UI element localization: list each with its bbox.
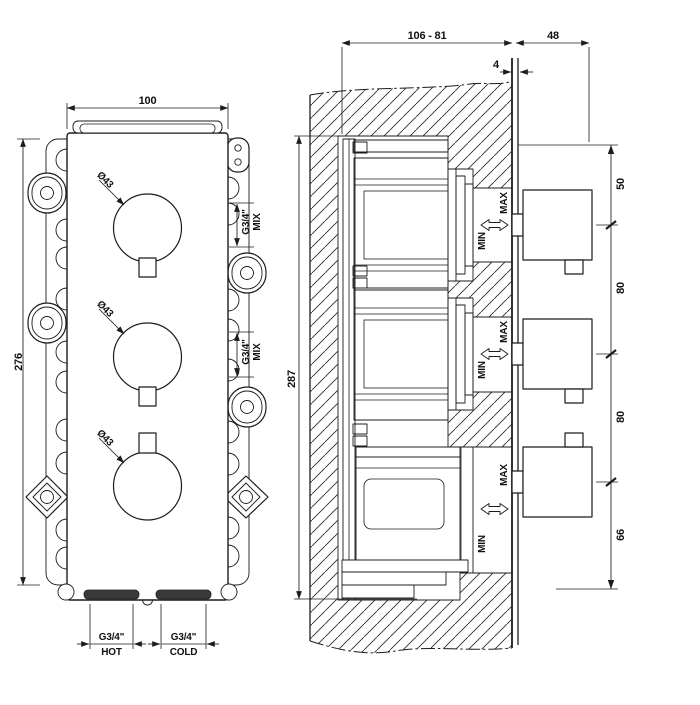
- mix-port-1-callout: G3/4" MIX: [229, 203, 263, 247]
- valve-3-min-label: MIN: [477, 535, 488, 553]
- mix-1-label: MIX: [252, 213, 263, 231]
- cold-port-callout: G3/4" COLD: [148, 604, 219, 658]
- section-height-text: 287: [286, 370, 298, 388]
- knob-2-side-tab: [565, 389, 583, 403]
- knob-1-side: [523, 190, 592, 260]
- top-lip: [73, 121, 222, 133]
- knob-2-tab: [139, 387, 156, 406]
- section-view: MAX MIN MAX MIN MAX MIN: [286, 30, 627, 653]
- valve-3-max-label: MAX: [499, 464, 510, 486]
- valve-1-stem: [512, 214, 523, 236]
- hot-label: HOT: [101, 647, 122, 658]
- valve-3-adjust-arrow: [481, 504, 508, 515]
- plate-thickness-dimension: 4: [493, 59, 533, 72]
- mix-2-label: MIX: [252, 343, 263, 361]
- spacing-80a-text: 80: [615, 282, 627, 294]
- valve-3-stem: [512, 471, 523, 493]
- spacing-50-text: 50: [615, 178, 627, 190]
- cold-inlet-slot: [156, 590, 211, 599]
- valve-2-max-label: MAX: [499, 321, 510, 343]
- screw-hole: [240, 491, 253, 504]
- knob-2-side: [523, 319, 592, 389]
- hot-size: G3/4": [99, 632, 125, 643]
- valve-2-stem: [512, 343, 523, 365]
- screw-hole: [41, 187, 54, 200]
- section-height-dimension: 287: [286, 136, 417, 599]
- valve-2-adjust-arrow: [481, 349, 508, 360]
- knob-3-tab: [139, 433, 156, 453]
- technical-drawing-thermostatic-valve: Ø43 Ø43 Ø43 100 276 G3/4" MIX: [0, 0, 700, 700]
- spacing-66-text: 66: [615, 529, 627, 541]
- knobs-front: [114, 194, 182, 520]
- valve-1-min-label: MIN: [477, 232, 488, 250]
- valve-3-body: [342, 447, 468, 598]
- screw-hole: [241, 401, 254, 414]
- corner-boss: [221, 584, 237, 600]
- front-view: Ø43 Ø43 Ø43 100 276 G3/4" MIX: [13, 95, 268, 658]
- cold-size: G3/4": [171, 632, 197, 643]
- height-dim-text: 276: [13, 353, 25, 371]
- knobs-section: [512, 190, 592, 517]
- knob-1-tab: [139, 258, 156, 277]
- corner-boss: [58, 584, 74, 600]
- valve-2-body: [354, 288, 473, 420]
- screw-hole: [41, 317, 54, 330]
- spacing-80b-text: 80: [615, 411, 627, 423]
- hot-port-callout: G3/4" HOT: [77, 604, 146, 658]
- mix-1-size: G3/4": [241, 209, 252, 235]
- drawing-canvas: Ø43 Ø43 Ø43 100 276 G3/4" MIX: [0, 0, 700, 700]
- valve-1-adjust-arrow: [481, 220, 508, 231]
- valve-bodies: [342, 139, 473, 600]
- valve-1-max-label: MAX: [499, 192, 510, 214]
- knob-3-side: [523, 447, 592, 517]
- knob-1-side-tab: [565, 260, 583, 274]
- depth-dim-text: 106 - 81: [408, 30, 447, 42]
- width-dim-text: 100: [139, 95, 157, 107]
- cold-label: COLD: [170, 647, 198, 658]
- hot-inlet-slot: [84, 590, 139, 599]
- handle-depth-dimension: 48: [516, 30, 589, 142]
- mix-2-size: G3/4": [241, 339, 252, 365]
- handle-depth-text: 48: [547, 30, 559, 42]
- plate-thickness-text: 4: [493, 59, 500, 71]
- valve-2-min-label: MIN: [477, 361, 488, 379]
- min-max-zones: MAX MIN MAX MIN MAX MIN: [473, 188, 512, 573]
- center-notch: [143, 600, 153, 605]
- screw-hole: [241, 267, 254, 280]
- knob-3-side-tab: [565, 433, 583, 447]
- top-right-ear: [227, 138, 249, 172]
- screw-hole: [41, 491, 54, 504]
